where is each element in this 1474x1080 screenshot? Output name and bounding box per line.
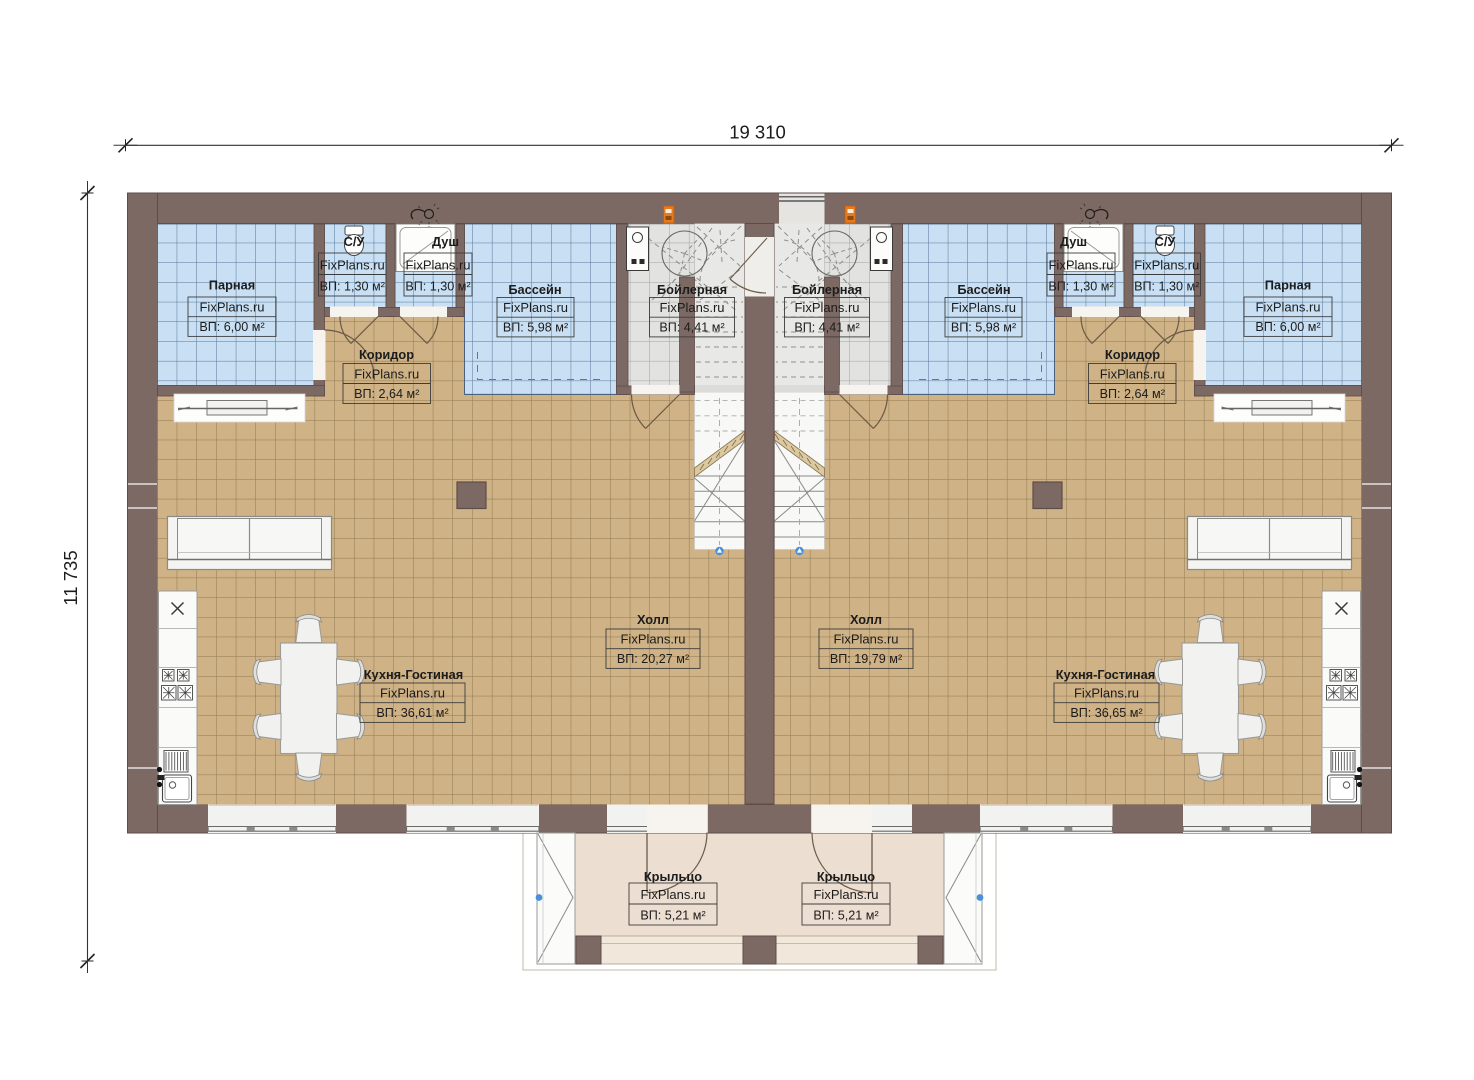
svg-text:ВП: 1,30 м²: ВП: 1,30 м²	[405, 279, 470, 293]
svg-text:Бойлерная: Бойлерная	[792, 282, 862, 297]
svg-text:ВП: 1,30 м²: ВП: 1,30 м²	[1134, 279, 1199, 293]
svg-text:Холл: Холл	[850, 612, 882, 627]
svg-text:ВП: 36,65 м²: ВП: 36,65 м²	[1070, 706, 1142, 720]
svg-text:ВП: 1,30 м²: ВП: 1,30 м²	[320, 279, 385, 293]
svg-text:Душ: Душ	[432, 234, 459, 249]
svg-text:ВП: 6,00 м²: ВП: 6,00 м²	[1255, 320, 1320, 334]
svg-text:FixPlans.ru: FixPlans.ru	[833, 632, 898, 647]
svg-text:Кухня-Гостиная: Кухня-Гостиная	[1056, 667, 1156, 682]
svg-text:FixPlans.ru: FixPlans.ru	[503, 300, 568, 315]
svg-text:Бойлерная: Бойлерная	[657, 282, 727, 297]
svg-text:ВП: 36,61 м²: ВП: 36,61 м²	[376, 706, 448, 720]
svg-text:FixPlans.ru: FixPlans.ru	[794, 300, 859, 315]
svg-text:Душ: Душ	[1060, 234, 1087, 249]
svg-text:11 735: 11 735	[60, 550, 81, 605]
svg-text:ВП: 6,00 м²: ВП: 6,00 м²	[199, 320, 264, 334]
svg-text:ВП: 1,30 м²: ВП: 1,30 м²	[1048, 279, 1113, 293]
svg-text:С/У: С/У	[344, 234, 366, 249]
svg-text:FixPlans.ru: FixPlans.ru	[1100, 366, 1165, 381]
svg-text:FixPlans.ru: FixPlans.ru	[659, 300, 724, 315]
svg-text:Коридор: Коридор	[359, 347, 414, 362]
svg-text:ВП: 19,79 м²: ВП: 19,79 м²	[830, 652, 902, 666]
svg-text:FixPlans.ru: FixPlans.ru	[405, 257, 470, 272]
svg-text:ВП: 5,98 м²: ВП: 5,98 м²	[503, 320, 568, 334]
svg-text:С/У: С/У	[1155, 234, 1177, 249]
svg-text:FixPlans.ru: FixPlans.ru	[1134, 257, 1199, 272]
svg-text:ВП: 5,98 м²: ВП: 5,98 м²	[951, 320, 1016, 334]
svg-text:FixPlans.ru: FixPlans.ru	[951, 300, 1016, 315]
svg-text:Бассейн: Бассейн	[957, 282, 1010, 297]
svg-text:FixPlans.ru: FixPlans.ru	[354, 366, 419, 381]
svg-text:ВП: 2,64 м²: ВП: 2,64 м²	[1100, 387, 1165, 401]
svg-text:FixPlans.ru: FixPlans.ru	[199, 300, 264, 315]
svg-text:ВП: 5,21 м²: ВП: 5,21 м²	[640, 908, 705, 922]
svg-text:FixPlans.ru: FixPlans.ru	[380, 686, 445, 701]
svg-text:Коридор: Коридор	[1105, 347, 1160, 362]
svg-text:ВП: 4,41 м²: ВП: 4,41 м²	[794, 320, 859, 334]
svg-text:Парная: Парная	[1265, 278, 1311, 293]
svg-text:Кухня-Гостиная: Кухня-Гостиная	[364, 667, 464, 682]
svg-text:Крыльцо: Крыльцо	[644, 869, 702, 884]
svg-text:FixPlans.ru: FixPlans.ru	[320, 257, 385, 272]
svg-text:FixPlans.ru: FixPlans.ru	[1074, 686, 1139, 701]
svg-text:FixPlans.ru: FixPlans.ru	[620, 632, 685, 647]
svg-text:Парная: Парная	[209, 278, 255, 293]
svg-text:FixPlans.ru: FixPlans.ru	[1048, 257, 1113, 272]
svg-text:Крыльцо: Крыльцо	[817, 869, 875, 884]
svg-text:19 310: 19 310	[729, 122, 786, 143]
svg-text:ВП: 5,21 м²: ВП: 5,21 м²	[813, 908, 878, 922]
svg-text:ВП: 4,41 м²: ВП: 4,41 м²	[659, 320, 724, 334]
svg-text:FixPlans.ru: FixPlans.ru	[1255, 300, 1320, 315]
svg-text:Холл: Холл	[637, 612, 669, 627]
svg-text:Бассейн: Бассейн	[508, 282, 561, 297]
svg-text:ВП: 20,27 м²: ВП: 20,27 м²	[617, 652, 689, 666]
svg-text:FixPlans.ru: FixPlans.ru	[813, 887, 878, 902]
svg-text:ВП: 2,64 м²: ВП: 2,64 м²	[354, 387, 419, 401]
svg-text:FixPlans.ru: FixPlans.ru	[640, 887, 705, 902]
